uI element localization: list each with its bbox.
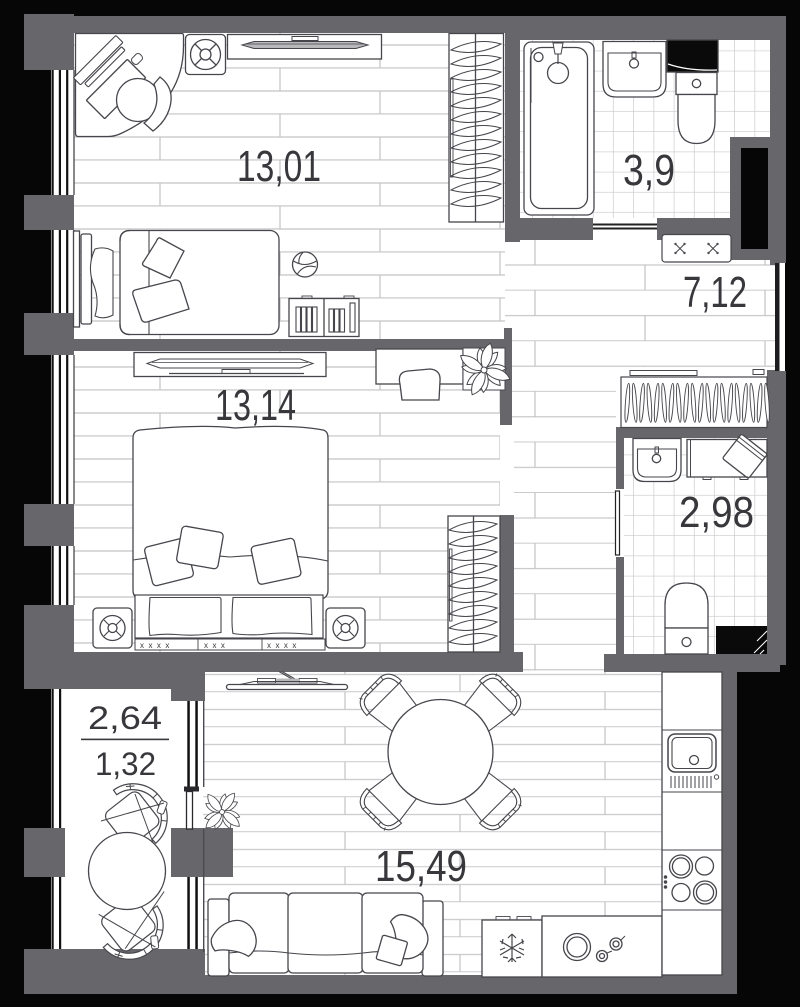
svg-text:3,9: 3,9	[623, 146, 675, 195]
svg-text:7,12: 7,12	[683, 268, 747, 317]
svg-text:13,01: 13,01	[237, 142, 321, 191]
svg-text:x x x x: x x x x	[140, 641, 169, 650]
svg-text:2,98: 2,98	[679, 488, 754, 537]
svg-text:1,32: 1,32	[95, 746, 156, 782]
svg-text:x x x x: x x x x	[267, 641, 296, 650]
svg-text:x x x: x x x	[204, 641, 225, 650]
svg-text:13,14: 13,14	[215, 381, 296, 430]
svg-text:2,64: 2,64	[88, 700, 162, 736]
svg-text:15,49: 15,49	[375, 842, 467, 891]
